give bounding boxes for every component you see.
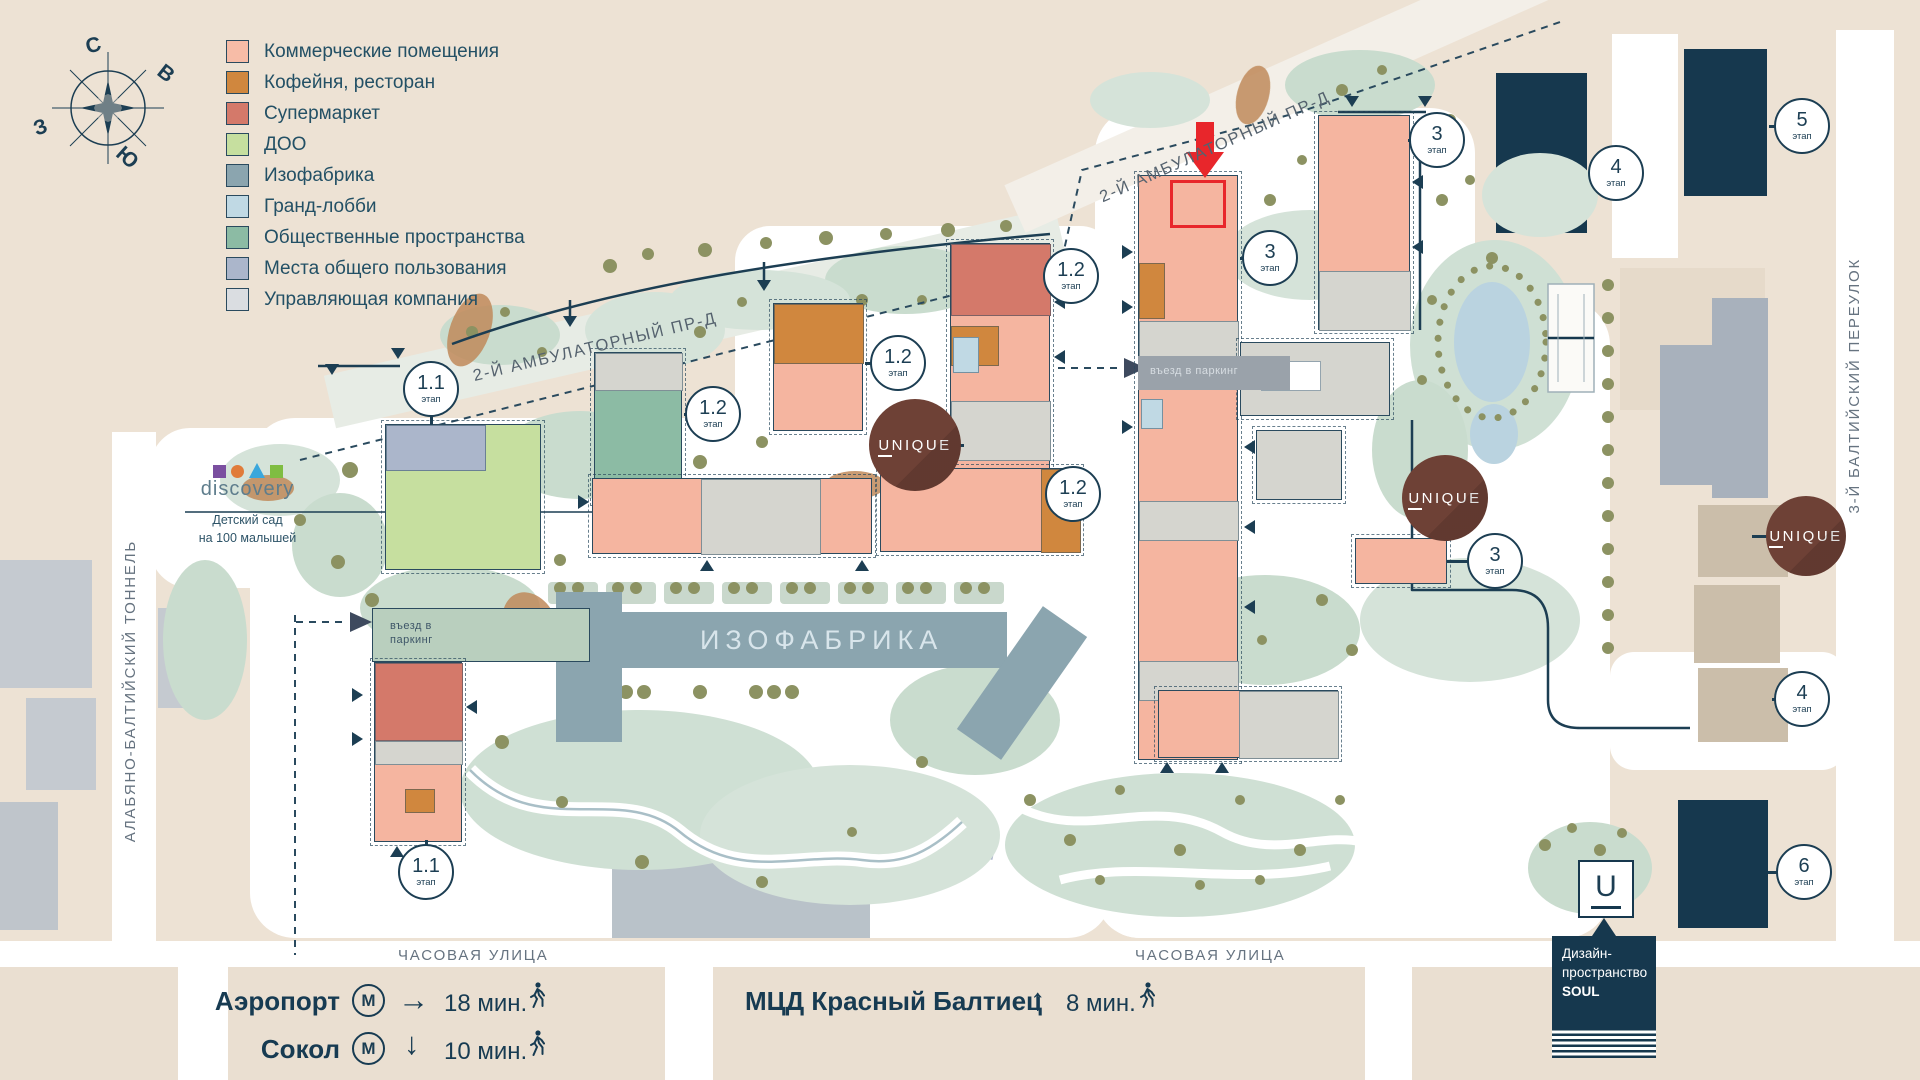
building-section <box>1139 501 1239 541</box>
entrance-marker-icon <box>1412 175 1423 189</box>
legend: Коммерческие помещения Кофейня, ресторан… <box>226 40 525 319</box>
entrance-marker-icon <box>563 316 577 327</box>
mcd-time: 8 мин. <box>1066 990 1136 1018</box>
building-section-cafe <box>1139 263 1165 319</box>
entrance-marker-icon <box>1244 440 1255 454</box>
entrance-marker-icon <box>325 364 339 375</box>
legend-swatch <box>226 102 249 125</box>
building-section <box>375 741 463 765</box>
logo-square-icon <box>270 465 283 478</box>
entrance-marker-icon <box>1122 245 1133 259</box>
building-section-supermarket <box>375 663 463 741</box>
legend-swatch <box>226 71 249 94</box>
stage-marker-4[interactable]: 4этап <box>1588 145 1644 201</box>
street-label-chasovaya: ЧАСОВАЯ УЛИЦА <box>398 947 549 964</box>
building-section-lobby <box>1141 399 1163 429</box>
metro-sokol-name: Сокол <box>150 1034 340 1065</box>
street-label-chasovaya: ЧАСОВАЯ УЛИЦА <box>1135 947 1286 964</box>
unique-office-badge[interactable]: UNIQUE <box>1402 455 1488 541</box>
legend-swatch <box>226 164 249 187</box>
stage-marker-1-2[interactable]: 1.2этап <box>870 335 926 391</box>
legend-swatch <box>226 133 249 156</box>
building-stage3-mid2[interactable] <box>1256 430 1342 500</box>
direction-down-arrow-icon: ↓ <box>404 1028 420 1059</box>
stage-marker-3[interactable]: 3этап <box>1409 112 1465 168</box>
building-section <box>701 479 821 555</box>
legend-row: Супермаркет <box>226 102 525 125</box>
legend-row: ДОО <box>226 133 525 156</box>
unique-office-badge[interactable]: UNIQUE <box>1766 496 1846 576</box>
building-kindergarten[interactable] <box>385 424 541 570</box>
street-label-tunnel: АЛАБЯНО-БАЛТИЙСКИЙ ТОННЕЛЬ <box>122 540 139 842</box>
entrance-marker-icon <box>700 560 714 571</box>
metro-airport-name: Аэропорт <box>150 986 340 1017</box>
stage-marker-1-2[interactable]: 1.2этап <box>1045 466 1101 522</box>
metro-sokol-time: 10 мин. <box>444 1038 527 1066</box>
entrance-marker-icon <box>757 280 771 291</box>
stage-marker-1-1[interactable]: 1.1этап <box>398 844 454 900</box>
building-lower-left[interactable] <box>374 662 462 842</box>
stage-marker-3[interactable]: 3этап <box>1242 230 1298 286</box>
parking-entry-label: въезд в паркинг <box>1150 365 1238 379</box>
logo-circle-icon <box>231 465 244 478</box>
entrance-marker-icon <box>391 348 405 359</box>
stage-marker-1-2[interactable]: 1.2этап <box>1043 248 1099 304</box>
selected-unit-highlight[interactable] <box>1170 180 1226 228</box>
legend-row: Изофабрика <box>226 164 525 187</box>
legend-row: Места общего пользования <box>226 257 525 280</box>
izofabrika-label: ИЗОФАБРИКА <box>700 625 943 656</box>
building-section-lobby <box>953 337 979 373</box>
walker-icon <box>1138 982 1155 1009</box>
legend-swatch <box>226 40 249 63</box>
entrance-marker-icon <box>466 700 477 714</box>
soul-logo-letter: U <box>1591 870 1621 909</box>
entrance-marker-icon <box>1122 300 1133 314</box>
entrance-marker-icon <box>578 495 589 509</box>
legend-row: Общественные пространства <box>226 226 525 249</box>
building-stage3-left[interactable] <box>1138 175 1238 760</box>
street-label-baltiysky: 3-Й БАЛТИЙСКИЙ ПЕРЕУЛОК <box>1846 258 1863 513</box>
entrance-marker-icon <box>1418 96 1432 107</box>
discovery-logo-shapes <box>180 462 315 478</box>
walker-icon <box>528 982 545 1009</box>
stage-marker-1-2[interactable]: 1.2этап <box>685 386 741 442</box>
building-section <box>595 353 683 391</box>
building-section <box>1239 691 1339 759</box>
building-section <box>1319 271 1411 331</box>
logo-square-icon <box>213 465 226 478</box>
legend-swatch <box>226 195 249 218</box>
walker-icon <box>528 1030 545 1057</box>
stage-marker-1-1[interactable]: 1.1этап <box>403 361 459 417</box>
legend-swatch <box>226 226 249 249</box>
tennis-court <box>1548 284 1594 392</box>
discovery-brand: discovery <box>180 478 315 501</box>
legend-row: Гранд-лобби <box>226 195 525 218</box>
stage-marker-4[interactable]: 4этап <box>1774 671 1830 727</box>
compass-icon <box>40 30 190 190</box>
entrance-marker-icon <box>1054 350 1065 364</box>
building-stage3-right[interactable] <box>1318 115 1410 330</box>
building-section-cafe <box>405 789 435 813</box>
legend-swatch <box>226 257 249 280</box>
entrance-marker-icon <box>1412 240 1423 254</box>
legend-row: Кофейня, ресторан <box>226 71 525 94</box>
stage-marker-3[interactable]: 3этап <box>1467 533 1523 589</box>
building-section <box>774 304 864 364</box>
building-stage3-bottom[interactable] <box>1158 690 1338 758</box>
soul-logo-square: U <box>1578 860 1634 918</box>
building-row[interactable] <box>592 478 872 554</box>
metro-icon: М <box>352 1032 385 1065</box>
building-section <box>386 425 486 471</box>
entrance-marker-icon <box>1215 762 1229 773</box>
building-section-supermarket <box>951 244 1051 316</box>
entrance-marker-icon <box>1345 96 1359 107</box>
legend-row: Коммерческие помещения <box>226 40 525 63</box>
soul-stripes-decor <box>1552 1028 1656 1058</box>
legend-swatch <box>226 288 249 311</box>
stage-marker-6[interactable]: 6этап <box>1776 844 1832 900</box>
kindergarten-callout: discovery Детский сад на 100 малышей <box>180 462 315 547</box>
logo-triangle-icon <box>249 463 265 478</box>
building-cafe[interactable] <box>773 303 863 431</box>
soul-pointer-icon <box>1592 918 1616 936</box>
entrance-marker-icon <box>1244 600 1255 614</box>
direction-right-arrow-icon: → <box>398 984 429 1015</box>
entrance-marker-icon <box>855 560 869 571</box>
unique-office-badge[interactable]: UNIQUE <box>869 399 961 491</box>
stage-marker-5[interactable]: 5этап <box>1774 98 1830 154</box>
building-section <box>1139 321 1239 357</box>
entrance-marker-icon <box>352 688 363 702</box>
direction-up-arrow-icon: ↑ <box>1030 984 1046 1015</box>
metro-airport-time: 18 мин. <box>444 990 527 1018</box>
metro-icon: М <box>352 984 385 1017</box>
legend-row: Управляющая компания <box>226 288 525 311</box>
site-plan-map: ИЗОФАБРИКА въезд в паркинг въез <box>0 0 1920 1080</box>
mcd-station-name: МЦД Красный Балтиец <box>745 986 1042 1017</box>
parking-entry-label: въезд в паркинг <box>390 620 460 648</box>
building-stage3-row[interactable] <box>1355 538 1447 584</box>
kindergarten-caption: Детский сад на 100 малышей <box>180 511 315 547</box>
soul-label-box: Дизайн- пространство SOUL <box>1552 936 1656 1028</box>
entrance-marker-icon <box>1160 762 1174 773</box>
entrance-marker-icon <box>1122 420 1133 434</box>
building-section <box>951 401 1051 461</box>
entrance-marker-icon <box>352 732 363 746</box>
entrance-marker-icon <box>1244 520 1255 534</box>
